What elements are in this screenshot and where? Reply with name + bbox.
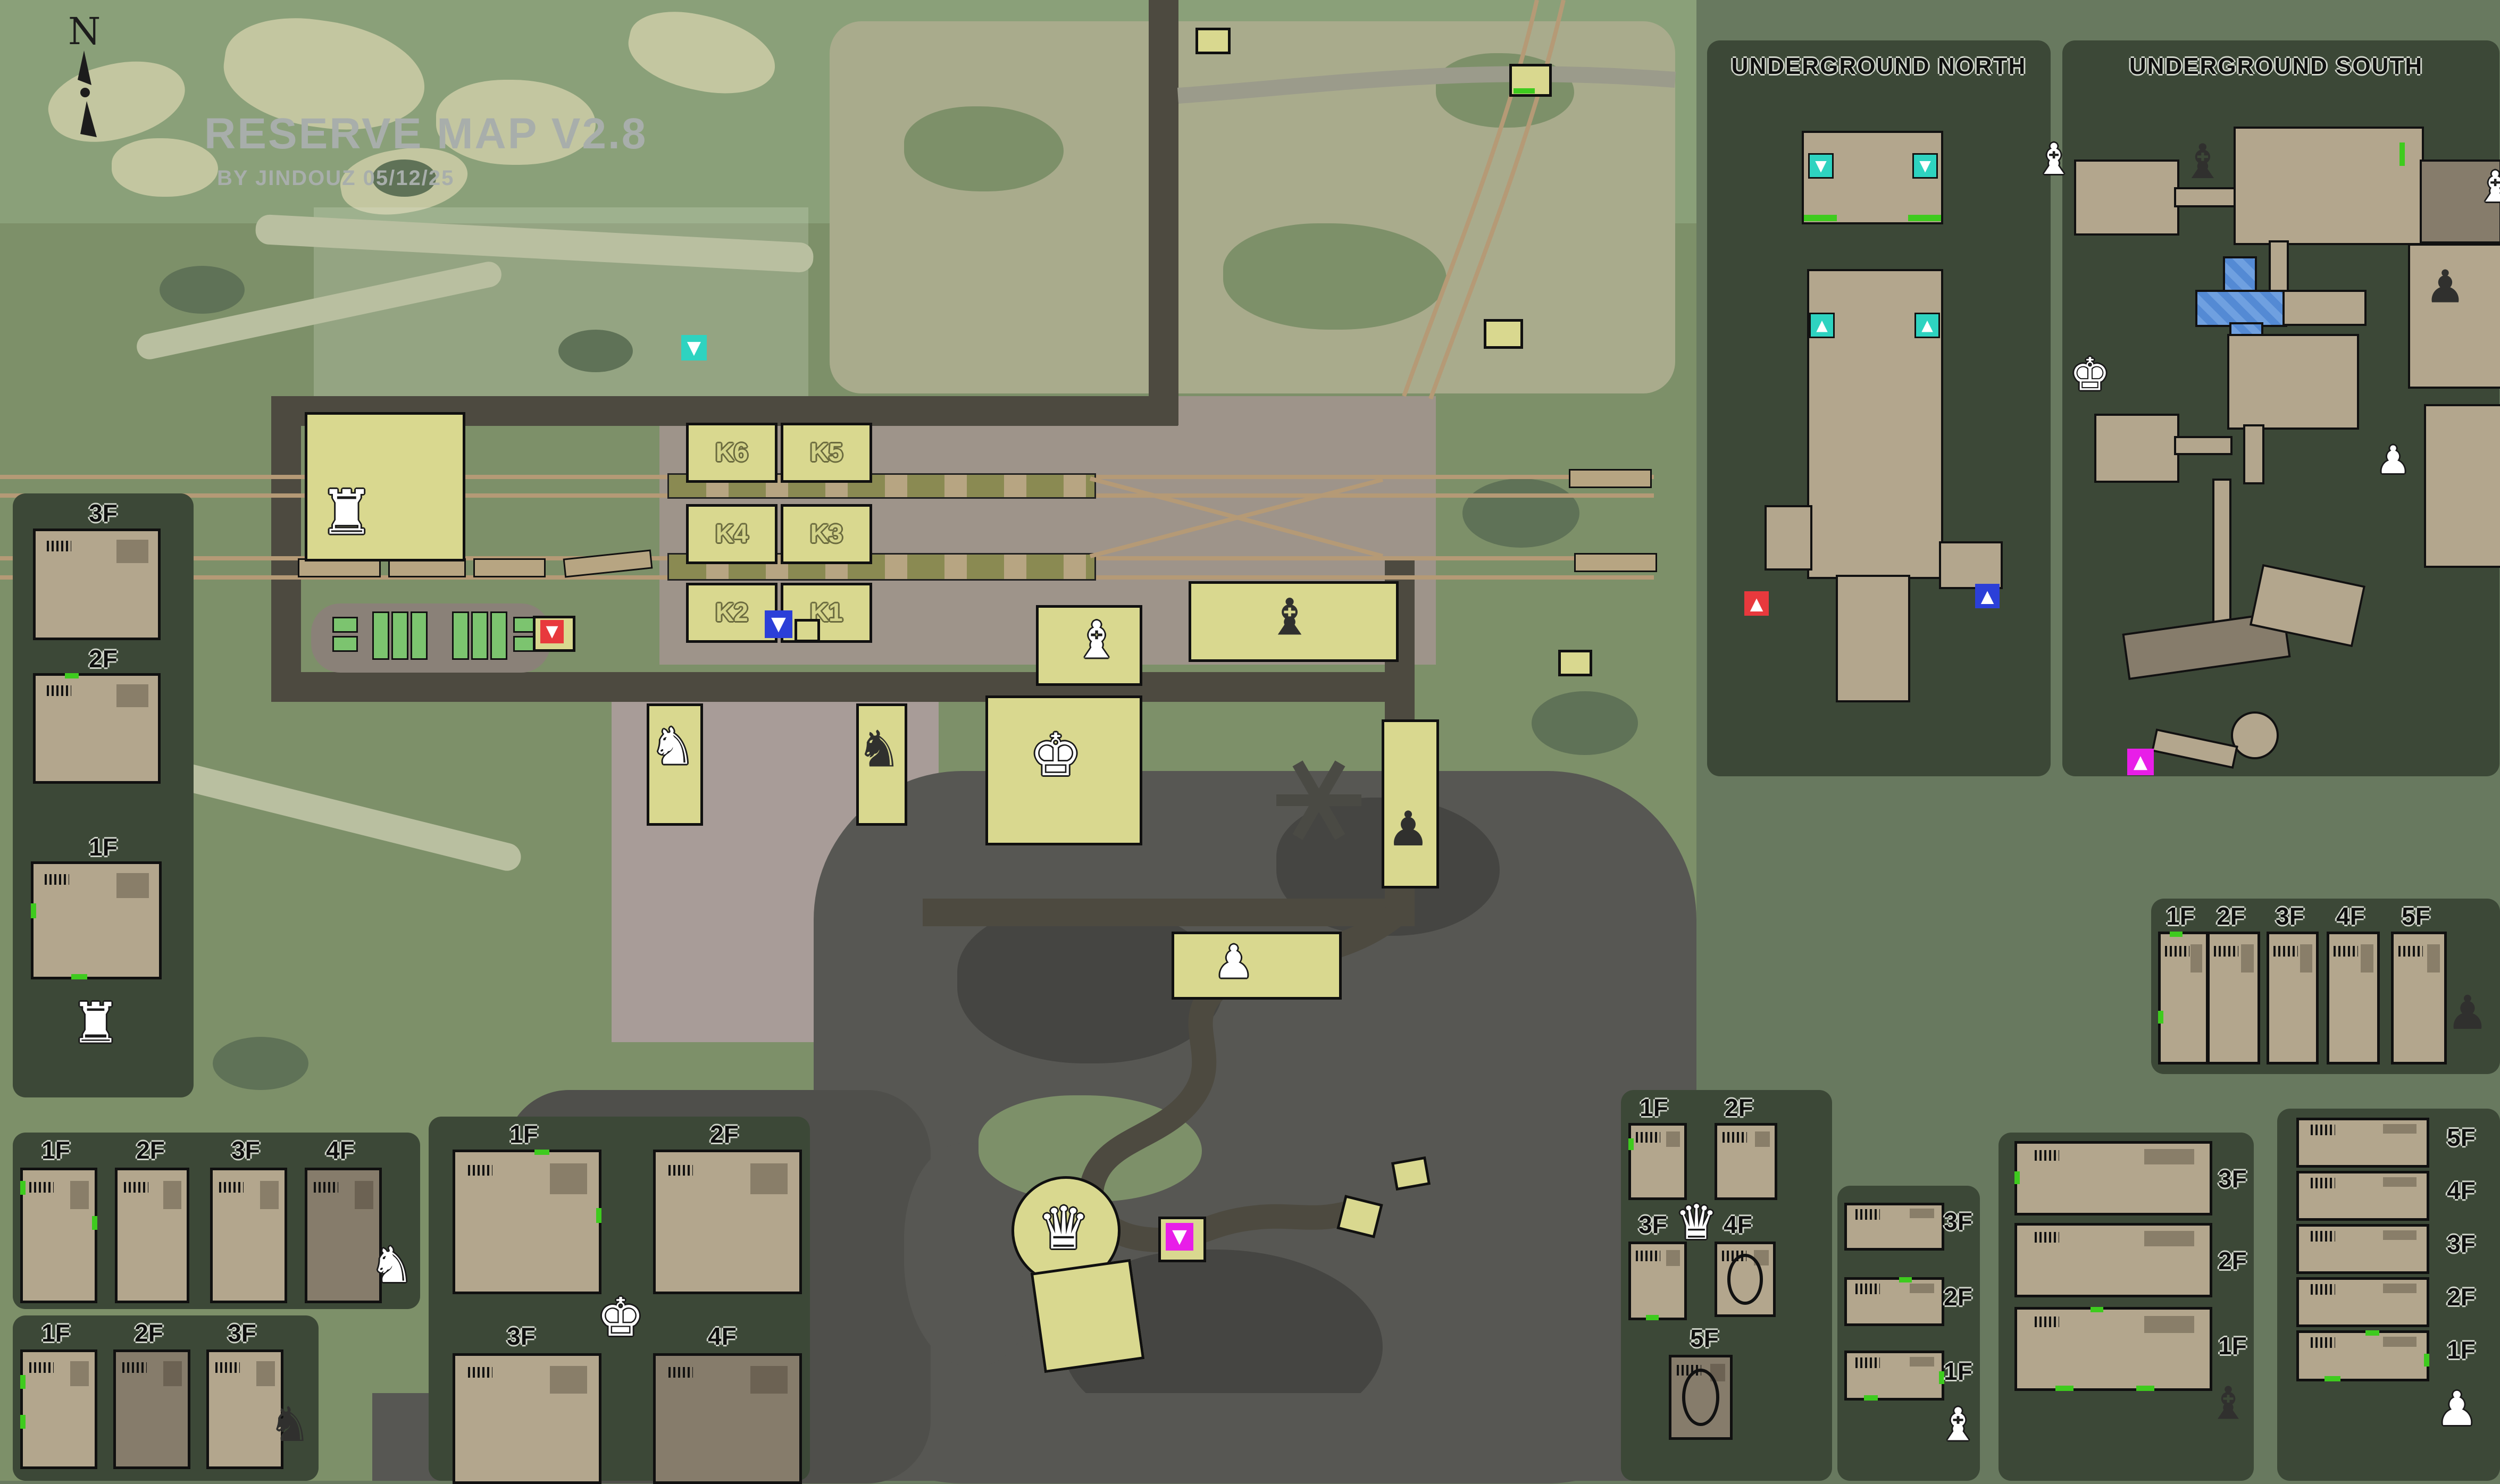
floor-label: 4F (2336, 902, 2365, 930)
underground-structure (2234, 127, 2424, 245)
floor-plan (2296, 1277, 2429, 1327)
floor-label: 1F (1944, 1357, 1972, 1386)
bunker-k2: K2 (686, 583, 777, 643)
floor-plan (2296, 1118, 2429, 1168)
floor-plan (2207, 932, 2260, 1064)
extraction-green-mark (1864, 1395, 1878, 1401)
floor-label: 3F (2218, 1164, 2247, 1193)
white-queen-icon: ♛ (1038, 1199, 1090, 1257)
floor-label: 5F (2447, 1123, 2476, 1152)
floor-label: 2F (1725, 1093, 1753, 1122)
black-bishop-icon: ♝ (2208, 1381, 2248, 1427)
floor-label: 1F (2218, 1331, 2247, 1360)
extraction-green-mark (92, 1216, 97, 1230)
floor-plan (2296, 1224, 2429, 1274)
floor-label: 3F (1944, 1207, 1972, 1236)
floor-label: 2F (2218, 1246, 2247, 1275)
white-king-icon: ♚ (1030, 726, 1082, 784)
helipad-wreck (1276, 758, 1361, 843)
bunker-k4-label: K4 (715, 519, 748, 549)
map-title-block: RESERVE MAP V2.8 BY JINDOUZ 05/12/25 (204, 109, 647, 190)
floor-plan (2014, 1223, 2212, 1297)
black-pawn-icon: ♟ (2447, 990, 2489, 1036)
white-pawn-building (1172, 932, 1342, 1000)
floor-plan (2267, 932, 2319, 1064)
marker-red-up: ▲ (1744, 591, 1769, 616)
floor-label: 2F (1944, 1282, 1972, 1311)
extraction-green-mark (65, 673, 79, 678)
floor-label: 3F (507, 1322, 536, 1351)
extraction-green-mark (20, 1415, 26, 1429)
underground-corridor (2243, 424, 2264, 484)
white-rook-icon: ♜ (71, 996, 121, 1052)
marker-blue-up: ▲ (1975, 584, 2000, 608)
black-knight-icon: ♞ (269, 1401, 312, 1449)
extraction-green-mark (20, 1181, 26, 1195)
black-pawn-icon: ♟ (1387, 806, 1430, 853)
extraction-green-mark (2014, 1171, 2020, 1184)
extraction-green-mark (596, 1208, 601, 1223)
white-bishop-icon: ♝ (2476, 166, 2500, 208)
floor-plan (113, 1349, 190, 1469)
floor-plan (20, 1168, 97, 1303)
bunker-k6: K6 (686, 423, 777, 483)
white-queen-icon: ♛ (1675, 1199, 1718, 1247)
floor-plan (2014, 1141, 2212, 1215)
floor-plan (2296, 1171, 2429, 1221)
triangle-down-icon: ▼ (687, 339, 701, 357)
dome-annex (1031, 1259, 1145, 1373)
floor-label: 2F (710, 1120, 739, 1148)
underground-structure (2074, 160, 2179, 236)
extraction-green-mark (2055, 1386, 2073, 1391)
underground-corridor (2269, 240, 2289, 295)
white-bishop-icon: ♝ (2035, 138, 2073, 181)
extraction-green-mark (2170, 932, 2183, 937)
underground-structure (2094, 414, 2179, 483)
compass-n-label: N (68, 10, 101, 53)
extraction-green-mark (1804, 215, 1837, 221)
white-king-icon: ♚ (597, 1291, 645, 1344)
flooded-corridor (2195, 290, 2287, 327)
underground-structure (1836, 575, 1910, 702)
triangle-up-icon: ▲ (1921, 318, 1933, 333)
small-building (1558, 650, 1592, 676)
floor-plan (2014, 1307, 2212, 1391)
floor-label: 2F (89, 644, 118, 673)
floor-label: 1F (89, 833, 118, 861)
floor-plan (653, 1150, 802, 1294)
floor-label: 1F (2166, 902, 2195, 930)
white-pawn-icon: ♟ (1214, 940, 1254, 985)
bunker-k2-label: K2 (715, 598, 748, 627)
map-title: RESERVE MAP V2.8 (204, 109, 647, 159)
floor-plan (453, 1150, 601, 1294)
floor-plan (453, 1353, 601, 1484)
triangle-down-icon: ▼ (771, 615, 786, 634)
extraction-green-mark (534, 1150, 549, 1155)
floor-plan (33, 673, 161, 784)
floor-label: 3F (89, 499, 118, 527)
extraction-green-mark (1899, 1277, 1912, 1282)
triangle-up-icon: ▲ (1981, 588, 1994, 605)
floor-label: 3F (228, 1319, 256, 1347)
floor-label: 1F (41, 1136, 70, 1164)
floor-plan (33, 529, 161, 640)
black-bishop-icon: ♝ (1267, 593, 1312, 643)
floor-label: 3F (2276, 902, 2304, 930)
floor-plan (1844, 1351, 1944, 1401)
white-king-icon: ♚ (2070, 353, 2110, 398)
floor-plan (2391, 932, 2447, 1064)
floor-label: 3F (231, 1136, 260, 1164)
extraction-green-mark (20, 1375, 26, 1389)
floor-label: 1F (509, 1120, 538, 1148)
extraction-green-mark (2091, 1307, 2103, 1312)
floor-plan (2158, 932, 2209, 1064)
floor-plan (210, 1168, 287, 1303)
triangle-down-icon: ▼ (1919, 158, 1931, 173)
floor-plan (1669, 1355, 1733, 1440)
floor-plan (1715, 1242, 1776, 1317)
extraction-green-mark (71, 974, 87, 979)
floor-plan (1844, 1203, 1944, 1251)
triangle-up-icon: ▲ (2134, 753, 2147, 771)
white-bishop-icon: ♝ (1938, 1403, 1978, 1448)
floor-plan (1844, 1277, 1944, 1326)
white-rook-icon: ♜ (319, 483, 374, 544)
bunker-k6-label: K6 (715, 438, 748, 467)
bunker-k3-label: K3 (810, 519, 842, 549)
bunker-k5: K5 (781, 423, 872, 483)
underground-corridor (2212, 479, 2231, 626)
marker-teal-down: ▼ (681, 335, 707, 360)
black-knight-icon: ♞ (856, 725, 901, 775)
floor-label: 2F (2217, 902, 2245, 930)
bunker-k5-label: K5 (810, 438, 842, 467)
underground-structure (2424, 404, 2500, 568)
floor-label: 1F (1640, 1093, 1668, 1122)
floor-plan (1628, 1242, 1687, 1320)
white-knight-icon: ♞ (370, 1241, 414, 1290)
white-pawn-icon: ♟ (2436, 1386, 2478, 1432)
underground-structure (1939, 541, 2003, 589)
reserve-map-canvas: ♜ K6 K5 K4 K3 K2 K1 ♞ ♞ ♚ ♝ ♝ ♟ ♟ ♛ ▼ ▼ … (0, 0, 2500, 1481)
small-building (1484, 319, 1523, 349)
marker-blue-down: ▼ (765, 610, 792, 638)
extraction-green-mark (2399, 142, 2405, 166)
extraction-green-mark (1514, 88, 1535, 94)
underground-room-circle (2231, 711, 2279, 759)
floor-label: 1F (41, 1319, 70, 1347)
marker-magenta-down: ▼ (1166, 1223, 1193, 1251)
white-knight-icon: ♞ (650, 722, 695, 773)
small-building (1391, 1156, 1431, 1191)
floor-label: 5F (1690, 1324, 1719, 1353)
underground-structure (1765, 505, 1812, 571)
black-pawn-icon: ♟ (2425, 265, 2465, 310)
triangle-down-icon: ▼ (1172, 1227, 1187, 1246)
triangle-down-icon: ▼ (546, 624, 558, 640)
floor-label: 3F (2447, 1229, 2476, 1258)
small-building (1195, 28, 1231, 54)
underground-structure (2227, 334, 2359, 430)
underground-north-title: UNDERGROUND NORTH (1732, 53, 2027, 80)
bunker-k4: K4 (686, 504, 777, 564)
floor-plan (653, 1353, 802, 1484)
extraction-green-mark (1628, 1138, 1634, 1150)
extraction-green-mark (2158, 1011, 2163, 1024)
extraction-green-mark (2325, 1376, 2340, 1381)
bunker-k3: K3 (781, 504, 872, 564)
underground-corridor (2174, 436, 2233, 455)
marker-magenta-up: ▲ (2127, 749, 2154, 775)
floor-plan (1715, 1123, 1777, 1200)
extraction-green-mark (1646, 1315, 1659, 1320)
black-bishop-icon: ♝ (2181, 138, 2225, 186)
floor-plan (1628, 1123, 1687, 1200)
underground-corridor (2174, 187, 2239, 207)
underground-south-title: UNDERGROUND SOUTH (2129, 53, 2423, 80)
small-building (795, 619, 820, 642)
floor-plan (20, 1349, 97, 1469)
triangle-up-icon: ▲ (1816, 318, 1828, 333)
floor-label: 4F (326, 1136, 355, 1164)
floor-plan (2296, 1330, 2429, 1381)
floor-label: 1F (2447, 1336, 2476, 1364)
floor-label: 2F (2447, 1282, 2476, 1311)
floor-label: 5F (2402, 902, 2430, 930)
white-bishop-icon: ♝ (1074, 616, 1119, 666)
underground-corridor (2282, 290, 2367, 326)
dome-ring (1727, 1254, 1763, 1304)
marker-red-down: ▼ (540, 620, 564, 643)
dome-ring (1682, 1369, 1719, 1426)
triangle-up-icon: ▲ (1750, 595, 1763, 612)
map-subtitle: BY JINDOUZ 05/12/25 (217, 166, 647, 190)
extraction-green-mark (2424, 1354, 2429, 1366)
floor-plan (2327, 932, 2380, 1064)
marker-teal-down: ▼ (1912, 153, 1938, 179)
extraction-green-mark (31, 903, 36, 918)
floor-label: 3F (1638, 1210, 1667, 1239)
floor-label: 4F (2447, 1176, 2476, 1205)
marker-teal-up: ▲ (1809, 313, 1835, 338)
floor-plan (115, 1168, 189, 1303)
extraction-green-mark (2136, 1386, 2154, 1391)
floor-label: 4F (708, 1322, 737, 1351)
triangle-down-icon: ▼ (1815, 158, 1827, 173)
floor-label: 2F (136, 1136, 165, 1164)
white-pawn-icon: ♟ (2376, 441, 2411, 479)
floor-plan (31, 861, 162, 979)
floor-label: 4F (1724, 1210, 1752, 1239)
floor-label: 2F (135, 1319, 163, 1347)
extraction-green-mark (2365, 1330, 2379, 1336)
marker-teal-down: ▼ (1808, 153, 1834, 179)
extraction-green-mark (1908, 215, 1941, 221)
marker-teal-up: ▲ (1914, 313, 1940, 338)
